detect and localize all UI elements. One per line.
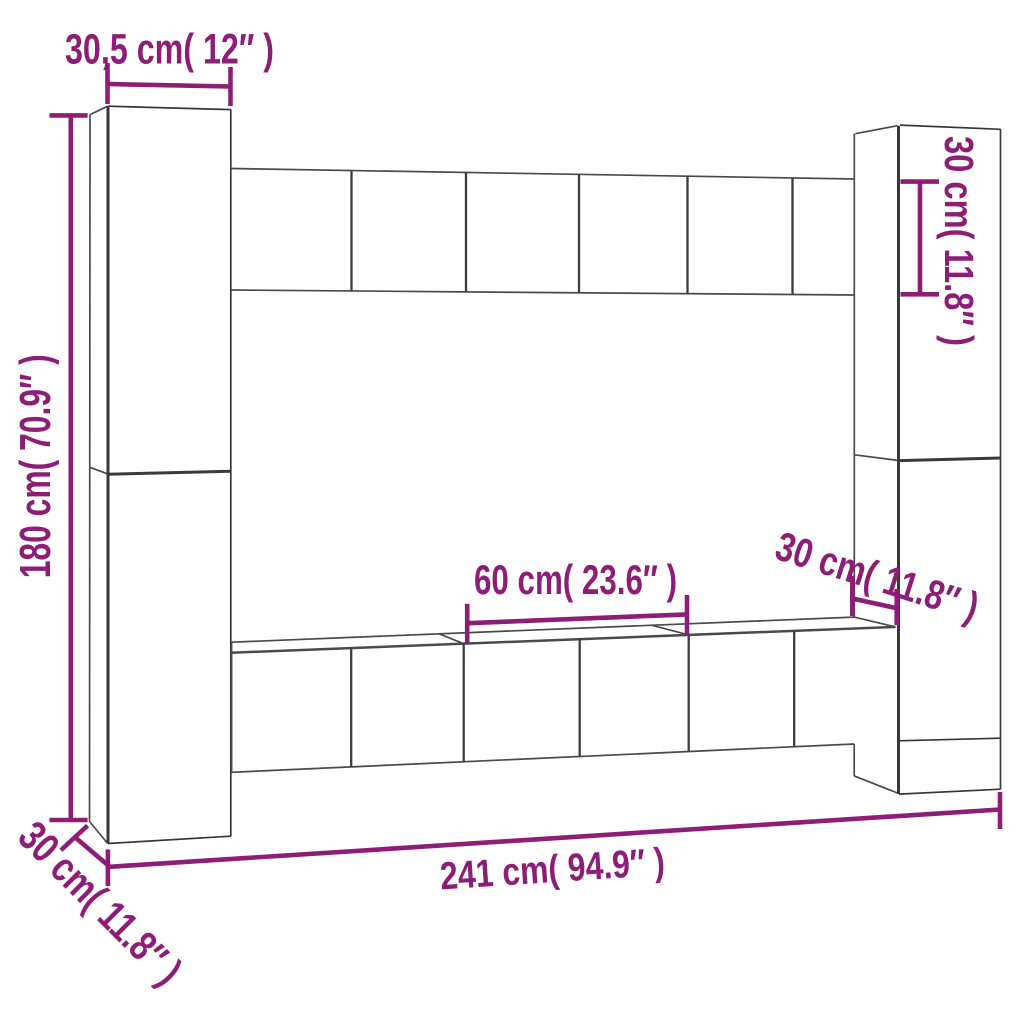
svg-text:180 cm( 70.9″ ): 180 cm( 70.9″ )	[11, 354, 60, 578]
svg-text:60 cm( 23.6″ ): 60 cm( 23.6″ )	[474, 556, 677, 603]
svg-text:30 cm( 11.8″ ): 30 cm( 11.8″ )	[936, 136, 982, 346]
svg-text:30,5 cm( 12″ ): 30,5 cm( 12″ )	[65, 26, 274, 74]
